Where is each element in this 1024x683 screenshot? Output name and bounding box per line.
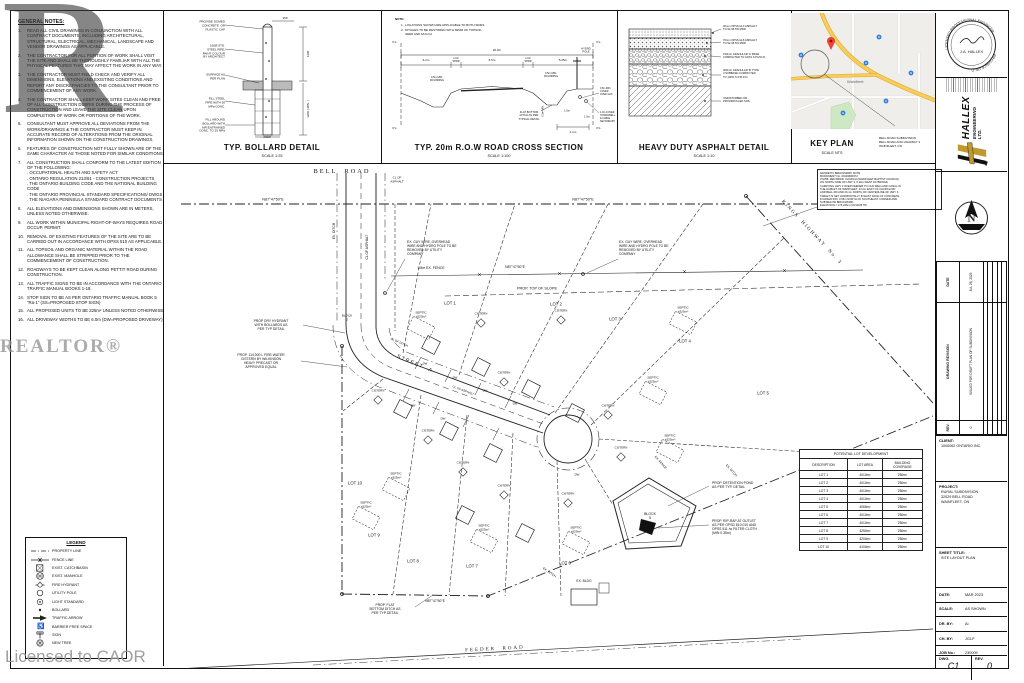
ex-fence-label: 1.8m EX. FENCE (417, 266, 444, 270)
block-5-label: BLOCK 5 (644, 512, 656, 520)
note-item: ALL PROPOSED UNITS TO BE 225m² UNLESS NO… (18, 308, 164, 313)
manhole-symbol (30, 572, 52, 580)
legend-item: ♿BARRIER FREE SPACE (26, 623, 126, 631)
table-row: LOT 14010m²250m² (800, 471, 923, 479)
lot-5-label: LOT 5 (757, 390, 769, 395)
ex-bldg-label: EX. BLDG (576, 580, 591, 584)
driveway-label: DW (483, 389, 488, 392)
rev-date-header: DATE (937, 262, 960, 303)
sheet-title-label: SHEET TITLE: (936, 548, 1007, 555)
note-item: ALL WORK WITHIN MUNICIPAL RIGHT-OF-WAYS … (18, 220, 164, 231)
bollard-dim-1200: 1200 (307, 51, 311, 58)
bollard-detail-title: TYP. BOLLARD DETAIL (163, 143, 381, 152)
project-name: RURAL SUBDIVISION 32029 BELL ROAD WAINFL… (936, 489, 1007, 505)
rev-desc-header: DRAWING REVISION (937, 303, 960, 421)
fire-cistern-note: PROP. 114,000 L FIRE WATER CISTERN BY WI… (237, 353, 284, 369)
dwg-number: C1 (936, 661, 971, 671)
top-of-slope-label: PROP. TOP OF SLOPE (517, 287, 557, 292)
bollard-dim-150: 150 (282, 17, 287, 21)
septic-label: SEPTIC ±525m² (677, 306, 688, 313)
xsec-dim-left: 5.2m (423, 59, 430, 63)
xsec-dim-right: 5.25m (559, 59, 567, 63)
note-item: ALL DRIVEWAY WIDTHS TO BE 6.0m (DW=PROPO… (18, 317, 164, 322)
potential-lot-development-table: POTENTIAL LOT DEVELOPMENT DESCRIPTION LO… (799, 449, 923, 551)
driveway-label: DW (513, 402, 518, 405)
project-section: PROJECT: RURAL SUBDIVISION 32029 BELL RO… (936, 481, 1007, 547)
lot-table-col-coverage: BUILDING COVERAGE (882, 459, 922, 471)
north-letter: N (968, 213, 976, 225)
company-name: HALLEX (961, 96, 972, 139)
xsec-rounding-right: 0.5m MIN. ROUNDING (544, 72, 558, 78)
bollard-detail-drawing (163, 13, 381, 139)
key-plan-panel: Wainfleet KEY PLAN SCALE NTS BELL ROAD S… (791, 13, 935, 163)
checked-by-field: CH. BY:JGLP (936, 631, 1007, 646)
engineer-seal-section: LICENSED PROFESSIONAL ENGINEER PROVINCE … (936, 13, 1007, 77)
ex-ditch-vertical-label: EX. DITCH (333, 223, 337, 239)
xsec-dim-21: 2.1m (570, 131, 577, 135)
table-row: LOT 64010m²250m² (800, 511, 923, 519)
sheet-title-section: SHEET TITLE: SITE LAYOUT PLAN (936, 547, 1007, 587)
cistern-label: CISTERN (372, 389, 385, 392)
xsec-dim-05: 0.5m MIN. (541, 105, 544, 117)
xsec-ditch-note: FLAT BOTTOM DITCH AS PER TYPICAL DETAIL (518, 111, 539, 121)
note-item: STOP SIGN TO BE AS PER ONTARIO TRAFFIC M… (18, 295, 164, 306)
note-item: ALL CONSTRUCTION SHALL CONFORM TO THE LA… (18, 160, 164, 203)
bell-road-label: BELL ROAD (313, 168, 370, 176)
client-section: CLIENT: 1000062 ONTARIO INC. (936, 435, 1007, 481)
note-item: ROADWAYS TO BE KEPT CLEAN ALONG PETTIT R… (18, 267, 164, 278)
revision-table-section: REV. DRAWING REVISION DATE 0 ISSUED FOR … (936, 261, 1007, 435)
company-subtitle: ENGINEERING LTD. (972, 96, 982, 139)
septic-label: SEPTIC ±525m² (415, 311, 426, 318)
table-row: LOT 74010m²250m² (800, 519, 923, 527)
bearing-bottom-label: N87°47'50"E (425, 599, 445, 603)
legend-box: LEGEND PROPERTY LINE FENCE LINE EXIST. C… (25, 537, 127, 659)
rev-col-header: REV. (937, 421, 960, 435)
xsec-dim-total: 20.0m (493, 49, 501, 53)
xsec-dim-shdr: 1.0m SHDR (452, 57, 459, 63)
cistern-label: CISTERN (498, 371, 511, 374)
general-notes-title: GENERAL NOTES: (18, 19, 164, 25)
septic-label: SEPTIC ±525m² (570, 526, 581, 533)
drawing-sheet: GENERAL NOTES: READ ALL CIVIL DRAWINGS I… (10, 10, 1009, 669)
dry-hydrant-note: PROP DRY HYDRANT WITH BOLLARDS AS PER TY… (254, 319, 289, 331)
light-standard-symbol (30, 598, 52, 606)
fire-hydrant-symbol (30, 581, 52, 589)
bollard-detail-scale: SCALE 1:25 (163, 154, 381, 158)
bollard-callout-around: FILL AROUND BOLLARD WITH AIR ENTRAINED C… (199, 119, 225, 134)
lot-6-label: LOT 6 (559, 560, 571, 565)
xsec-dim-10: 1.0m (584, 115, 590, 118)
hallex-logo-icon (952, 141, 992, 168)
note-item: CONSULTANT MUST APPROVE ALL DEVIATIONS F… (18, 121, 164, 142)
xsec-dim-15: 1.5m (564, 109, 570, 112)
lot-2-label: LOT 2 (550, 301, 562, 306)
xsec-note-title: NOTE: (395, 18, 404, 22)
traffic-arrow-symbol (30, 614, 52, 622)
lot-table-col-description: DESCRIPTION (800, 459, 848, 471)
block-2-label: BLOCK 2 (342, 314, 353, 321)
north-arrow-section: N (936, 171, 1007, 261)
detention-pond-note: PROP. DETENTION POND AS PER TYP. DETAIL (712, 481, 753, 489)
bearing-fence-label: N87°47'50"E (505, 265, 525, 269)
bollard-detail-panel: PROVIDE DOMED CONCRETE OR PLASTIC CAP 15… (163, 13, 381, 163)
septic-label: SEPTIC ±525m² (647, 376, 658, 383)
cross-section-scale: SCALE 1:100 (381, 154, 617, 158)
cl-asphalt-vertical-label: CL OF ASPHALT (366, 234, 370, 259)
asphalt-detail-scale: SCALE 1:10 (617, 154, 791, 158)
lot-4-label: LOT 4 (679, 338, 691, 343)
xsec-pl-left: P.L. (393, 41, 398, 45)
asphalt-detail-title: HEAVY DUTY ASPHALT DETAIL (617, 143, 791, 152)
table-row: LOT 84250m²250m² (800, 527, 923, 535)
company-logo-section: HALLEX ENGINEERING LTD. (936, 77, 1007, 171)
sign-symbol (30, 631, 52, 639)
svg-text:LICENSED PROFESSIONAL ENGINEER: LICENSED PROFESSIONAL ENGINEER (945, 18, 995, 50)
xsec-gas-note: 0.5m MIN. COVER OVER GAS (600, 87, 613, 96)
xsec-cable-note: 1.0m COVER HYDRO/BELL & CABLE SECONDARY (600, 111, 615, 123)
title-block: LICENSED PROFESSIONAL ENGINEER PROVINCE … (935, 13, 1007, 668)
cross-section-title: TYP. 20m R.O.W ROAD CROSS SECTION (381, 143, 617, 152)
table-row: LOT 24010m²250m² (800, 479, 923, 487)
table-row: LOT 94200m²250m² (800, 535, 923, 543)
revision-row: 0 ISSUED FOR DRAFT PLAN OF SUBDIVISION J… (960, 262, 983, 435)
xsec-dim-lane: 6.5m (489, 59, 496, 63)
legend-item: FENCE LINE (26, 555, 126, 563)
legend-item: BOLLARD (26, 606, 126, 614)
revision-table: REV. DRAWING REVISION DATE 0 ISSUED FOR … (936, 261, 1007, 435)
company-address-microtext (946, 78, 998, 92)
guy-wire-note-2: EX. GUY WIRE, OVERHEAD WIRE AND HYDRO PO… (619, 241, 669, 257)
driveway-label: DW (411, 404, 416, 407)
fields-section: DATE:MAR 2023 SCALE:AS SHOWN DR. BY:AI C… (936, 587, 1007, 655)
seal-signature (960, 37, 984, 43)
rev-number: 0 (972, 661, 1007, 671)
engineer-seal: LICENSED PROFESSIONAL ENGINEER PROVINCE … (936, 13, 1007, 77)
barrier-free-symbol: ♿ (30, 623, 52, 631)
riprap-note: PROP. RIP-RAP AT OUTLET AS PER OPSD 810.… (712, 519, 757, 535)
key-plan-map (791, 13, 935, 129)
asphalt-layer-4: 300mm GRANULAR 'B' TYPE II SUBBASE COMPA… (723, 69, 759, 79)
legend-item: UTILITY POLE (26, 589, 126, 597)
lot-table-title: POTENTIAL LOT DEVELOPMENT (800, 450, 923, 459)
legend-item: EXIST. MANHOLE (26, 572, 126, 580)
xsec-pl-right-2: P.L. (597, 127, 602, 131)
asphalt-detail-panel: 40mm OPSS HL3 ASPHALT TO 92-96.5% MRD 70… (617, 13, 791, 163)
lot-table-col-area: LOT AREA (848, 459, 883, 471)
septic-label: SEPTIC ±525m² (664, 434, 675, 441)
guy-wire-note-1: EX. GUY WIRE, OVERHEAD WIRE AND HYDRO PO… (407, 241, 457, 257)
bollard-dim-1200min: 1200 ( MIN. ) (307, 100, 311, 118)
legend-item: TRAFFIC ARROW (26, 614, 126, 622)
xsec-rounding-left: 0.5m MIN. ROUNDING (430, 76, 444, 82)
lot-1-label: LOT 1 (444, 300, 456, 305)
bearing-top-west: N87°47'50"E (262, 198, 284, 203)
bearing-top-mid: N87°47'50"E (572, 198, 594, 203)
seal-top-text: LICENSED PROFESSIONAL ENGINEER (945, 18, 995, 50)
lot-8-label: LOT 8 (407, 558, 419, 563)
note-item: THE CONTRACTOR FOR ALL PORTION OF WORK S… (18, 53, 164, 69)
septic-label: SEPTIC ±525m² (478, 524, 489, 531)
map-town-label: Wainfleet (847, 79, 864, 84)
north-arrow-icon: N (936, 172, 1007, 262)
table-row: LOT 34010m²250m² (800, 487, 923, 495)
legend-title: LEGEND (26, 540, 126, 545)
table-row: LOT 104100m²250m² (800, 543, 923, 551)
cistern-label: CISTERN (602, 404, 615, 407)
note-item: FEATURES OF CONSTRUCTION NOT FULLY SHOWN… (18, 146, 164, 157)
xsec-dim-shdr2: 1.0m SHDR (524, 57, 531, 63)
xsec-pl-right: P.L. (597, 41, 602, 45)
legend-item: NEW TREE (26, 639, 126, 647)
asphalt-layer-3: 150mm GRANULAR 'A' BASE COMPACTED TO 100… (723, 53, 766, 60)
driveway-label: DW (453, 376, 458, 379)
catchbasin-symbol (30, 564, 52, 572)
cistern-label: CISTERN (457, 461, 470, 464)
driveway-label: DW (575, 473, 580, 476)
drawn-by-field: DR. BY:AI (936, 616, 1007, 631)
new-tree-symbol (30, 639, 52, 647)
cistern-label: CISTERN (422, 429, 435, 432)
key-plan-title: KEY PLAN (791, 139, 873, 148)
legend-item: PROPERTY LINE (26, 547, 126, 555)
note-item: READ ALL CIVIL DRAWINGS IN CONJUNCTION W… (18, 28, 164, 49)
driveway-label: DW (423, 362, 428, 365)
note-item: THE CONTRACTOR SHALL KEEP WORK SITES CLE… (18, 97, 164, 118)
date-field: DATE:MAR 2023 (936, 587, 1007, 602)
cistern-label: CISTERN (475, 312, 488, 315)
key-plan-scale: SCALE NTS (791, 151, 873, 155)
note-item: REMOVAL OF EXISTING FEATURES OF THE SITE… (18, 234, 164, 245)
bollard-callout-surface: SURFACE AS PER PLAN (206, 73, 225, 81)
utility-pole-symbol (30, 589, 52, 597)
cistern-label: CISTERN (562, 492, 575, 495)
legend-item: EXIST. CATCHBASIN (26, 564, 126, 572)
legend-item: LIGHT STANDARD (26, 597, 126, 605)
cistern-label: CISTERN (498, 484, 511, 487)
bollard-callout-pipe: 150Ø STD. STEEL PIPE, PAINT COLOUR BY AR… (203, 45, 225, 60)
note-item: ALL TRAFFIC SIGNS TO BE IN ACCORDANCE WI… (18, 281, 164, 292)
driveway-label: DW (441, 417, 446, 420)
septic-label: SEPTIC ±525m² (360, 501, 371, 508)
lot-3-label: LOT 3 (609, 316, 621, 321)
septic-label: SEPTIC ±525m² (390, 472, 401, 479)
asphalt-layer-5: UNDISTURBED OR PROOFROLLED SOIL (723, 97, 750, 104)
client-label: CLIENT: (936, 436, 1007, 443)
key-plan-callout: BELL ROAD SUBDIVISION BELL ROAD AND HIGH… (879, 137, 920, 148)
lot-10-label: LOT 10 (348, 480, 362, 485)
asphalt-layer-1: 40mm OPSS HL3 ASPHALT TO 92-96.5% MRD (723, 25, 757, 32)
client-name: 1000062 ONTARIO INC. (936, 443, 1007, 449)
table-row: LOT 44010m²250m² (800, 495, 923, 503)
general-notes-list: READ ALL CIVIL DRAWINGS IN CONJUNCTION W… (16, 28, 164, 322)
geodetic-benchmark-note: GEODETIC BENCHMARK NOTE MONUMENT No. 001… (817, 169, 942, 210)
site-plan-sheet: { "watermarks": {"letter": "R", "brand":… (0, 0, 1024, 683)
bollard-callout-cap: PROVIDE DOMED CONCRETE OR PLASTIC CAP (199, 20, 225, 31)
lot-7-label: LOT 7 (466, 563, 478, 568)
note-item: ALL ELEVATIONS AND DIMENSIONS SHOWN ARE … (18, 206, 164, 217)
dwg-rev-section: DWG. C1 REV. 0 (936, 655, 1007, 680)
note-item: THE CONTRACTOR MUST FIELD CHECK AND VERI… (18, 72, 164, 93)
cl-asphalt-top-label: CL OF ASPHALT (390, 176, 403, 183)
scale-field: SCALE:AS SHOWN (936, 602, 1007, 617)
lot-9-label: LOT 9 (368, 532, 380, 537)
note-item: ALL TOPSOIL AND ORGANIC MATERIAL WITHIN … (18, 247, 164, 263)
flat-ditch-note: PROP. FLAT BOTTOM DITCH AS PER TYP DETAI… (369, 603, 400, 615)
xsec-pl-left-2: P.L. (393, 127, 398, 131)
table-row: LOT 54065m²250m² (800, 503, 923, 511)
road-cross-section-panel: NOTE: 1. LOCATIONS SHOWN ARE APPLICABLE … (381, 13, 617, 163)
xsec-note-2: 2. DITCHES TO BE RESTORED WITH 50MM OF T… (401, 29, 482, 37)
bollard-callout-fill: FILL STEEL PIPE WITH 30 MPa CONC. (205, 97, 225, 108)
sheet-title: SITE LAYOUT PLAN (936, 555, 1007, 561)
bollard-symbol (30, 606, 52, 614)
asphalt-detail-drawing (617, 13, 791, 139)
xsec-hydro-pole: HYDRO POLE (581, 48, 591, 55)
fence-line-symbol (30, 556, 52, 564)
project-label: PROJECT: (936, 482, 1007, 489)
legend-item: FIRE HYDRANT (26, 581, 126, 589)
asphalt-layer-2: 70mm OPSS HL8 ASPHALT TO 92-96.5% MRD (723, 39, 757, 46)
legend-item: SIGN (26, 631, 126, 639)
site-plan-area: BELL ROAD CL OF ASPHALT EX. DITCH CL OF … (163, 163, 935, 668)
seal-name-text: J.A. HALLEX (960, 49, 984, 54)
cistern-label: CISTERN (555, 309, 568, 312)
bollard-dim-200: 200Ø (263, 136, 270, 140)
cistern-label: CISTERN (615, 446, 628, 449)
property-line-symbol (30, 547, 52, 555)
